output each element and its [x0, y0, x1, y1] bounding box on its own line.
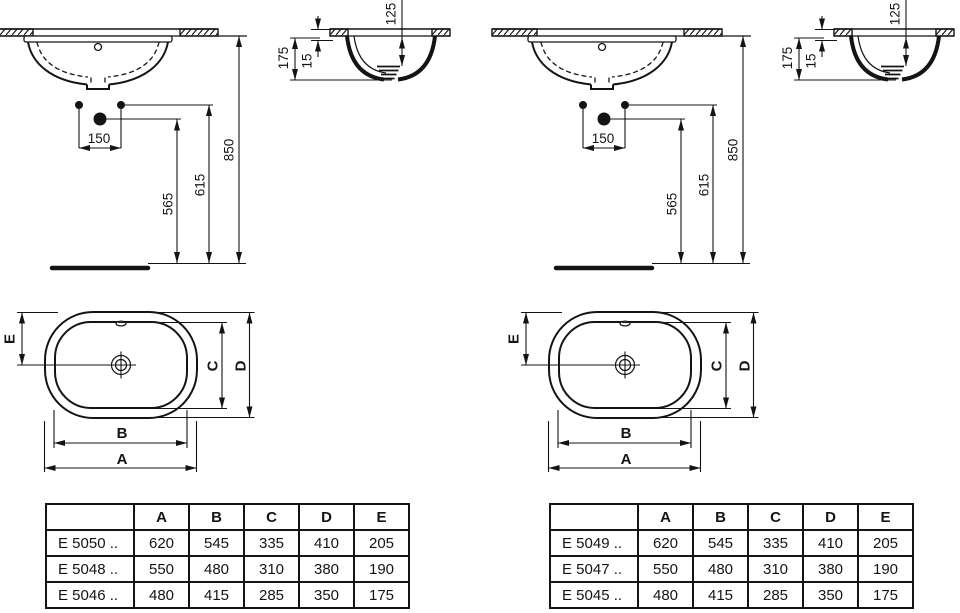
value-cell: 545: [693, 530, 748, 556]
value-cell: 190: [354, 556, 409, 582]
value-cell: 480: [638, 582, 693, 608]
header-cell-B: B: [693, 504, 748, 530]
value-cell: 380: [299, 556, 354, 582]
value-cell: 350: [803, 582, 858, 608]
value-cell: 190: [858, 556, 913, 582]
value-cell: 285: [244, 582, 299, 608]
header-cell-E: E: [354, 504, 409, 530]
technical-drawing-page: 150 565 615 850: [0, 0, 960, 613]
value-cell: 310: [748, 556, 803, 582]
model-cell: E 5045 ..: [550, 582, 638, 608]
model-cell: E 5047 ..: [550, 556, 638, 582]
header-cell-A: A: [134, 504, 189, 530]
value-cell: 480: [134, 582, 189, 608]
header-cell-E: E: [858, 504, 913, 530]
table-row: E 5050 .. 620 545 335 410 205: [46, 530, 409, 556]
value-cell: 550: [638, 556, 693, 582]
header-cell-blank: [550, 504, 638, 530]
value-cell: 410: [299, 530, 354, 556]
model-cell: E 5049 ..: [550, 530, 638, 556]
header-cell-C: C: [244, 504, 299, 530]
panel-left: [0, 0, 450, 472]
model-cell: E 5046 ..: [46, 582, 134, 608]
panel-right: [492, 0, 954, 472]
value-cell: 415: [693, 582, 748, 608]
value-cell: 620: [638, 530, 693, 556]
spec-table-right: A B C D E E 5049 .. 620 545 335 410 205 …: [549, 503, 914, 609]
value-cell: 350: [299, 582, 354, 608]
value-cell: 335: [748, 530, 803, 556]
value-cell: 175: [858, 582, 913, 608]
value-cell: 550: [134, 556, 189, 582]
table-row: E 5046 .. 480 415 285 350 175: [46, 582, 409, 608]
header-cell-D: D: [803, 504, 858, 530]
table-row: E 5048 .. 550 480 310 380 190: [46, 556, 409, 582]
value-cell: 380: [803, 556, 858, 582]
header-cell-B: B: [189, 504, 244, 530]
value-cell: 480: [189, 556, 244, 582]
value-cell: 545: [189, 530, 244, 556]
value-cell: 480: [693, 556, 748, 582]
value-cell: 285: [748, 582, 803, 608]
header-cell-blank: [46, 504, 134, 530]
value-cell: 415: [189, 582, 244, 608]
table-header-row: A B C D E: [46, 504, 409, 530]
header-cell-C: C: [748, 504, 803, 530]
header-cell-D: D: [299, 504, 354, 530]
table-header-row: A B C D E: [550, 504, 913, 530]
value-cell: 175: [354, 582, 409, 608]
model-cell: E 5050 ..: [46, 530, 134, 556]
header-cell-A: A: [638, 504, 693, 530]
value-cell: 410: [803, 530, 858, 556]
value-cell: 205: [858, 530, 913, 556]
spec-table-left: A B C D E E 5050 .. 620 545 335 410 205 …: [45, 503, 410, 609]
value-cell: 335: [244, 530, 299, 556]
model-cell: E 5048 ..: [46, 556, 134, 582]
value-cell: 310: [244, 556, 299, 582]
table-row: E 5049 .. 620 545 335 410 205: [550, 530, 913, 556]
value-cell: 205: [354, 530, 409, 556]
table-row: E 5045 .. 480 415 285 350 175: [550, 582, 913, 608]
value-cell: 620: [134, 530, 189, 556]
table-row: E 5047 .. 550 480 310 380 190: [550, 556, 913, 582]
